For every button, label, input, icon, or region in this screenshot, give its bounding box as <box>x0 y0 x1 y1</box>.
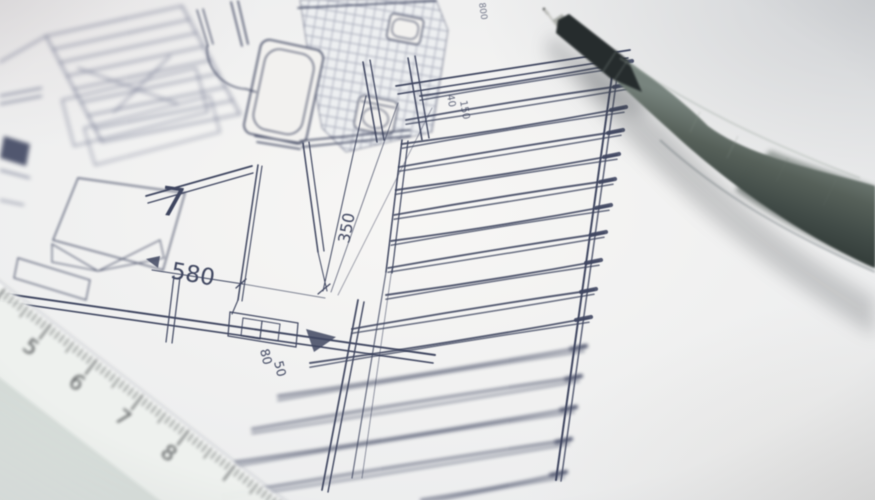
photo-blueprint-desk: 7 580 350 80 50 40 150 800 5 6 7 <box>0 0 875 500</box>
vignette <box>0 0 875 500</box>
blueprint-photo-canvas: 7 580 350 80 50 40 150 800 5 6 7 <box>0 0 875 500</box>
